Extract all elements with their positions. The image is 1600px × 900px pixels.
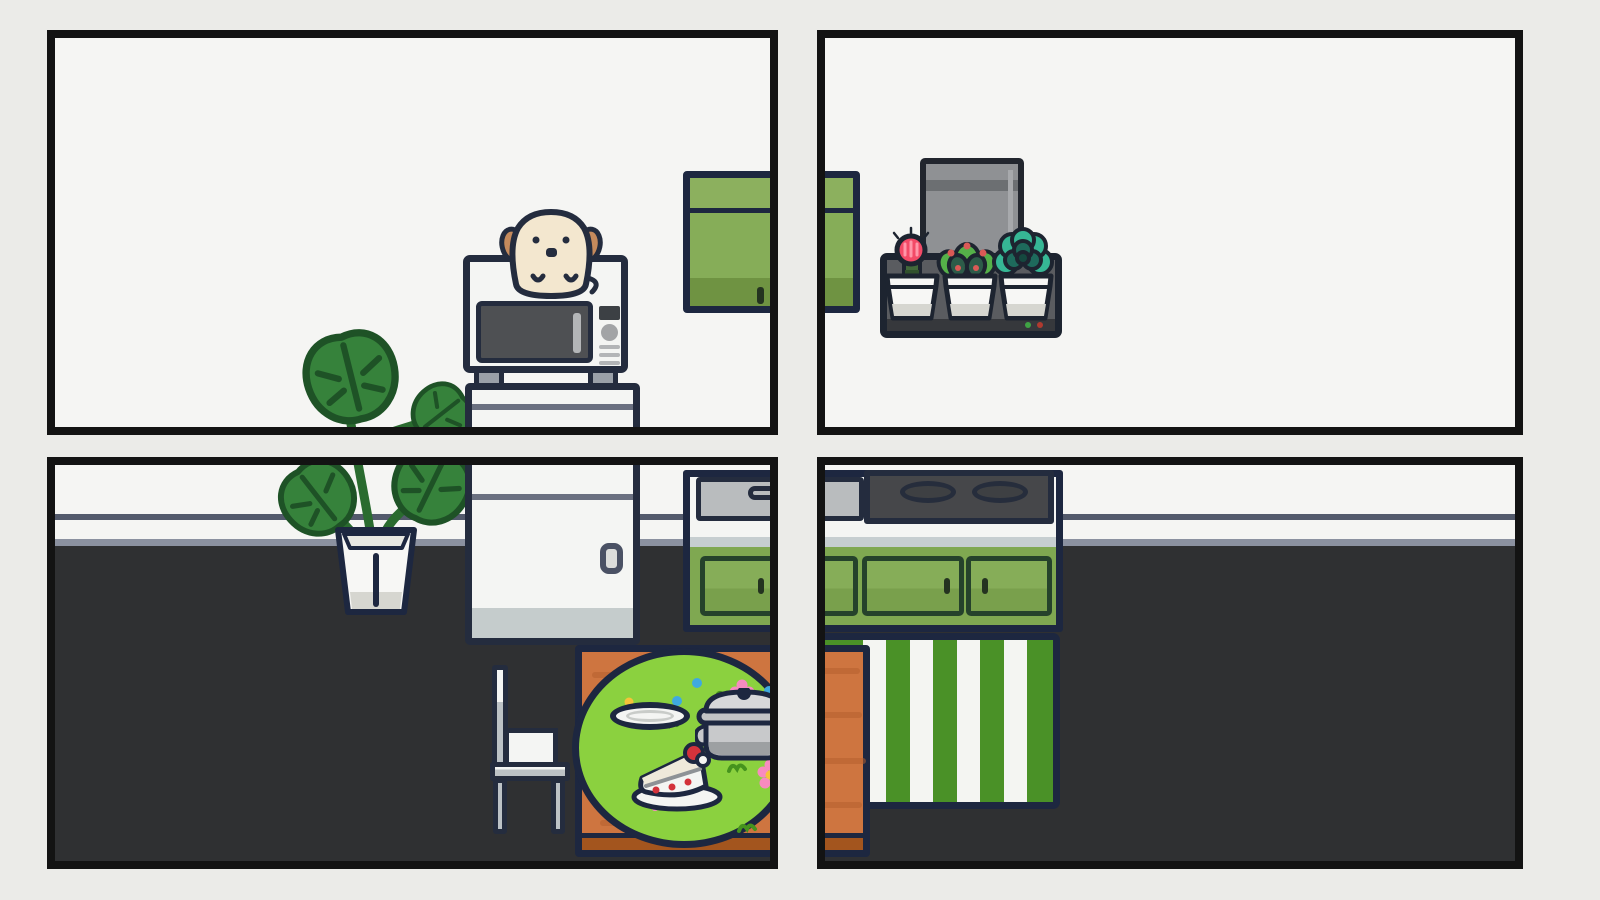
microwave-display <box>599 306 620 320</box>
panel-bottom-left <box>47 457 778 869</box>
cabinet-door[interactable] <box>966 556 1052 616</box>
wood-grain <box>822 758 866 764</box>
burner <box>972 481 1028 503</box>
wall-cabinet-seam <box>817 208 853 213</box>
wall-cabinet-door-shade <box>817 278 853 306</box>
faucet <box>748 486 778 500</box>
monstera-plant[interactable] <box>262 457 488 618</box>
microwave-button[interactable] <box>599 345 620 349</box>
chair-leg <box>551 778 565 834</box>
table-front-shade <box>817 838 863 850</box>
pot-moon-cactus[interactable] <box>887 228 937 318</box>
pot-green-succulent[interactable] <box>935 243 1000 319</box>
monstera-leaf <box>298 325 405 429</box>
microwave-door-handle <box>573 313 581 353</box>
plate-rim <box>626 710 674 722</box>
cream-dollop <box>697 754 709 766</box>
panel-bottom-right <box>817 457 1523 869</box>
microwave-button[interactable] <box>599 353 620 357</box>
wood-grain <box>818 712 862 718</box>
rug-stripe <box>910 640 933 802</box>
wall-cabinet-seam <box>690 208 778 213</box>
wall-cabinet-handle[interactable] <box>757 287 764 304</box>
cake-slice[interactable] <box>630 742 726 816</box>
dining-table[interactable] <box>817 645 870 857</box>
base-cabinet[interactable] <box>690 547 778 625</box>
cabinet-door[interactable] <box>817 556 858 616</box>
panel-top-left <box>47 30 778 435</box>
wall-cabinet-top-strip <box>817 178 853 208</box>
burner <box>900 481 956 503</box>
cabinet-door-handle <box>758 578 764 594</box>
fridge-bottom-band <box>472 608 633 638</box>
chair-leg <box>493 778 507 834</box>
room-scene <box>47 457 778 869</box>
microwave-knob[interactable] <box>601 324 618 341</box>
pot-echeveria[interactable] <box>994 229 1052 318</box>
room-scene <box>47 30 778 435</box>
cabinet-door[interactable] <box>862 556 964 616</box>
succulent-pots[interactable] <box>882 226 1062 326</box>
panel-top-right <box>817 30 1523 435</box>
cabinet-door-handle <box>944 578 950 594</box>
counter-edge-strip <box>817 537 1056 547</box>
wall-cabinet[interactable] <box>817 171 860 313</box>
counter-edge-strip <box>690 537 778 547</box>
wall-cabinet-top-strip <box>690 178 778 208</box>
wood-grain <box>820 668 860 674</box>
monstera-plant[interactable] <box>262 318 488 435</box>
grey-appliance-band <box>926 180 1018 191</box>
wall-cabinet-door-shade <box>690 278 778 306</box>
room-scene <box>817 457 1523 869</box>
rug-stripe <box>933 640 957 802</box>
rug-stripe <box>1027 640 1053 802</box>
fridge-door-seam <box>472 494 633 500</box>
base-cabinet[interactable] <box>817 547 1056 625</box>
mini-fridge[interactable] <box>465 383 640 435</box>
fridge-handle[interactable] <box>600 543 623 574</box>
microwave-button[interactable] <box>599 361 620 365</box>
rug-stripe <box>980 640 1004 802</box>
rug-stripe <box>886 640 910 802</box>
wood-grain <box>818 802 862 808</box>
rug-stripe <box>957 640 980 802</box>
kitchen-counter[interactable] <box>683 470 778 632</box>
cabinet-door-handle <box>982 578 988 594</box>
puppy[interactable] <box>494 206 608 302</box>
plant-pot[interactable] <box>338 530 414 612</box>
sink-top[interactable] <box>817 477 864 521</box>
game-viewport <box>0 0 1600 900</box>
mini-fridge[interactable] <box>465 457 640 645</box>
cooktop[interactable] <box>864 470 1054 524</box>
kitchen-counter[interactable] <box>817 470 1063 632</box>
room-scene <box>817 30 1523 435</box>
fridge-seam <box>472 404 633 410</box>
cabinet-door[interactable] <box>700 556 778 616</box>
rug-stripe <box>1004 640 1027 802</box>
microwave-door[interactable] <box>476 301 593 363</box>
wall-cabinet[interactable] <box>683 171 778 313</box>
plate[interactable] <box>610 702 690 730</box>
